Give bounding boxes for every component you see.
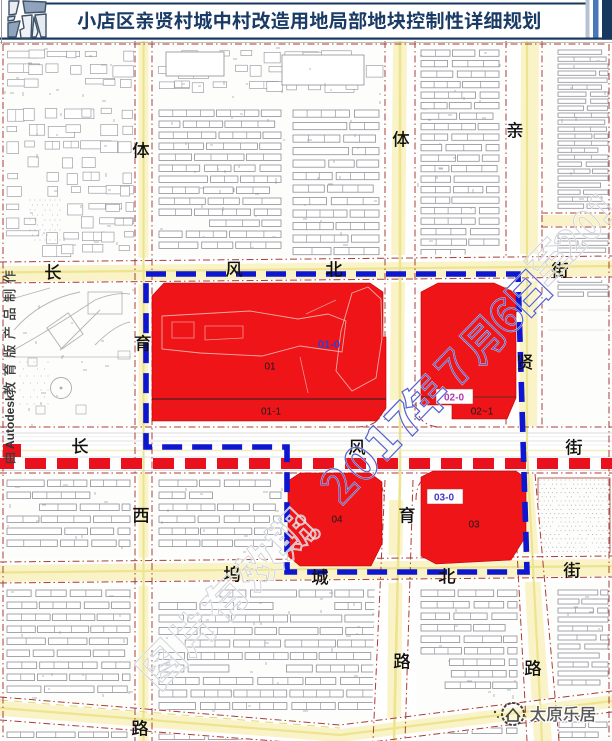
svg-text:Autodesk: Autodesk xyxy=(3,394,17,449)
svg-text:04: 04 xyxy=(331,515,343,526)
svg-text:03: 03 xyxy=(468,520,480,531)
svg-text:01: 01 xyxy=(264,362,276,373)
svg-text:01-0: 01-0 xyxy=(318,339,340,351)
svg-text:02-0: 02-0 xyxy=(444,393,464,404)
svg-text:02~1: 02~1 xyxy=(471,407,494,418)
svg-text:01-1: 01-1 xyxy=(261,407,281,418)
svg-text:03-0: 03-0 xyxy=(434,493,454,504)
